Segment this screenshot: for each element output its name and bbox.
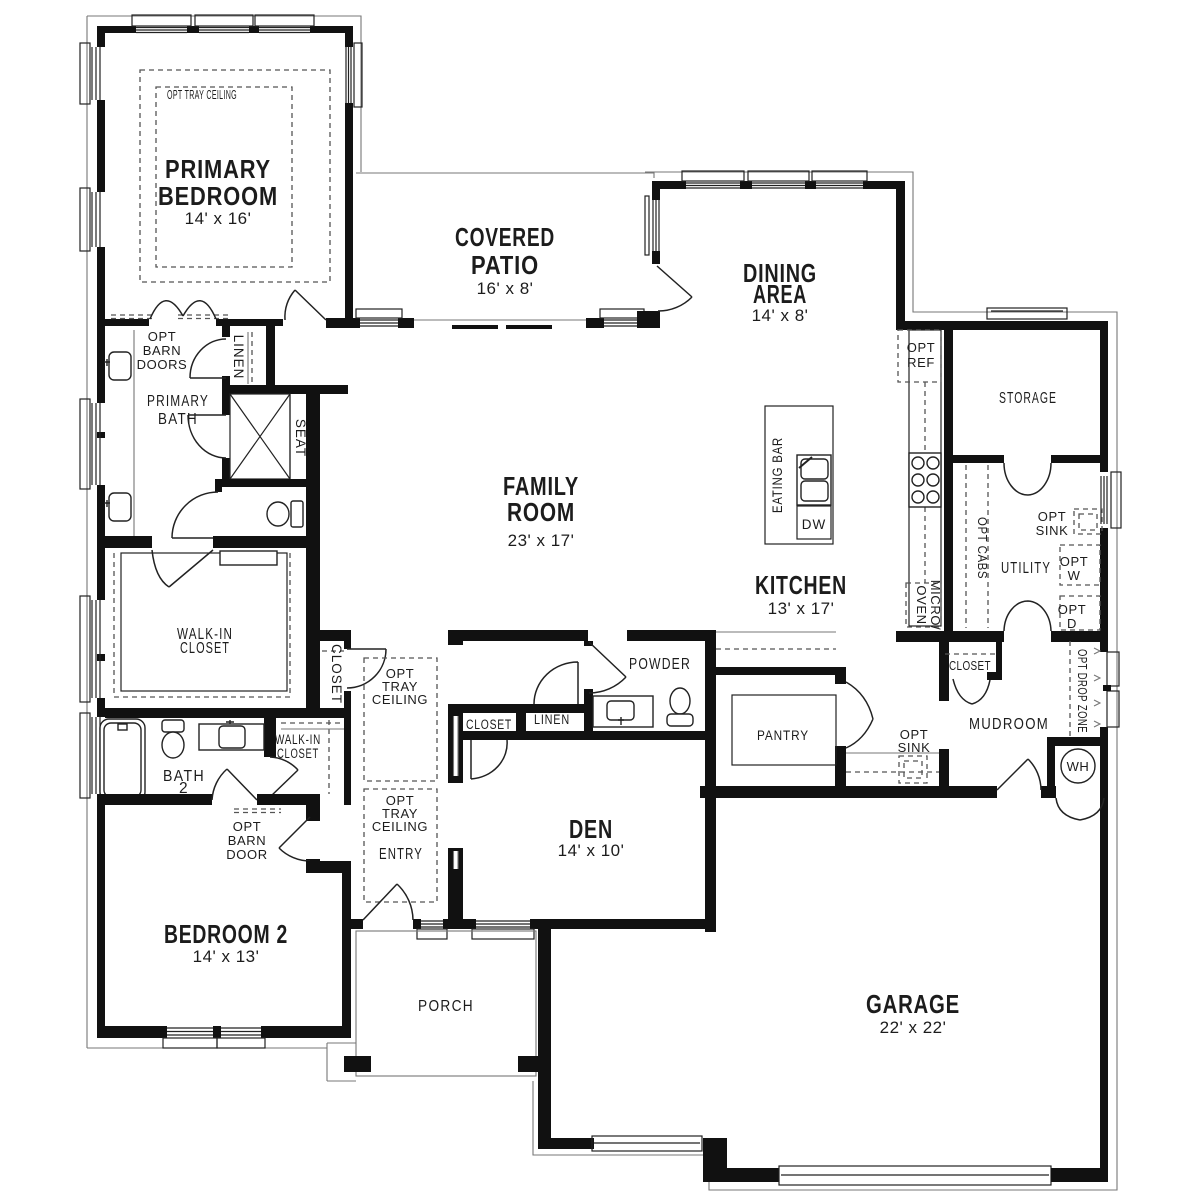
svg-text:LINEN: LINEN [534,712,570,727]
svg-text:OPT: OPT [907,340,936,355]
svg-text:W: W [1068,568,1081,583]
svg-text:COVERED: COVERED [455,222,555,252]
svg-text:23' x 17': 23' x 17' [508,531,575,550]
svg-text:BATH: BATH [158,411,198,428]
svg-text:14' x 13': 14' x 13' [193,947,260,966]
svg-text:BARN: BARN [143,343,182,358]
svg-text:OPT: OPT [1038,509,1067,524]
svg-text:SINK: SINK [1036,523,1069,538]
svg-text:BEDROOM: BEDROOM [158,181,278,211]
svg-text:PRIMARY: PRIMARY [165,154,271,184]
svg-text:CLOSET: CLOSET [277,746,319,761]
svg-text:DOORS: DOORS [137,357,188,372]
svg-text:DW: DW [802,517,827,532]
svg-text:DEN: DEN [569,814,613,844]
svg-text:OVEN: OVEN [914,585,929,624]
svg-text:UTILITY: UTILITY [1001,560,1051,577]
svg-text:LINEN: LINEN [231,335,246,380]
svg-text:AREA: AREA [753,279,807,309]
svg-text:MICRO/: MICRO/ [928,580,943,631]
svg-text:POWDER: POWDER [629,656,691,673]
svg-text:PANTRY: PANTRY [757,728,809,743]
svg-text:EATING BAR: EATING BAR [770,437,785,513]
svg-text:13' x 17': 13' x 17' [768,599,835,618]
svg-text:OPT CABS: OPT CABS [975,517,990,579]
svg-text:ROOM: ROOM [507,497,575,527]
svg-text:CLOSET: CLOSET [329,644,344,704]
svg-text:CEILING: CEILING [372,692,428,707]
svg-text:OPT TRAY CEILING: OPT TRAY CEILING [167,87,237,102]
svg-text:22' x 22': 22' x 22' [880,1018,947,1037]
svg-text:REF: REF [907,355,935,370]
svg-text:PATIO: PATIO [471,250,539,280]
svg-text:CLOSET: CLOSET [949,659,991,673]
svg-text:OPT: OPT [233,819,262,834]
svg-text:SINK: SINK [898,740,931,755]
svg-text:OPT DROP ZONE: OPT DROP ZONE [1075,649,1090,733]
svg-text:WH: WH [1067,759,1090,774]
svg-text:WALK-IN: WALK-IN [275,732,321,747]
svg-text:CEILING: CEILING [372,819,428,834]
svg-text:CLOSET: CLOSET [466,717,512,732]
svg-text:DOOR: DOOR [226,847,267,862]
svg-text:CLOSET: CLOSET [180,640,230,657]
svg-text:16' x 8': 16' x 8' [477,279,534,298]
svg-text:BARN: BARN [228,833,267,848]
svg-text:PRIMARY: PRIMARY [147,393,209,410]
svg-text:GARAGE: GARAGE [866,989,960,1019]
svg-text:BEDROOM 2: BEDROOM 2 [164,919,288,949]
svg-text:SEAT: SEAT [293,419,308,457]
svg-text:OPT: OPT [1060,554,1089,569]
svg-text:OPT: OPT [1058,602,1087,617]
svg-text:STORAGE: STORAGE [999,390,1057,407]
svg-text:KITCHEN: KITCHEN [755,570,847,600]
svg-text:OPT: OPT [148,329,177,344]
svg-text:D: D [1067,616,1077,631]
svg-text:14' x 8': 14' x 8' [752,306,809,325]
svg-text:MUDROOM: MUDROOM [969,716,1049,733]
svg-text:ENTRY: ENTRY [379,846,423,863]
svg-text:PORCH: PORCH [418,998,474,1015]
svg-text:14' x 16': 14' x 16' [185,209,252,228]
svg-text:14' x 10': 14' x 10' [558,841,625,860]
